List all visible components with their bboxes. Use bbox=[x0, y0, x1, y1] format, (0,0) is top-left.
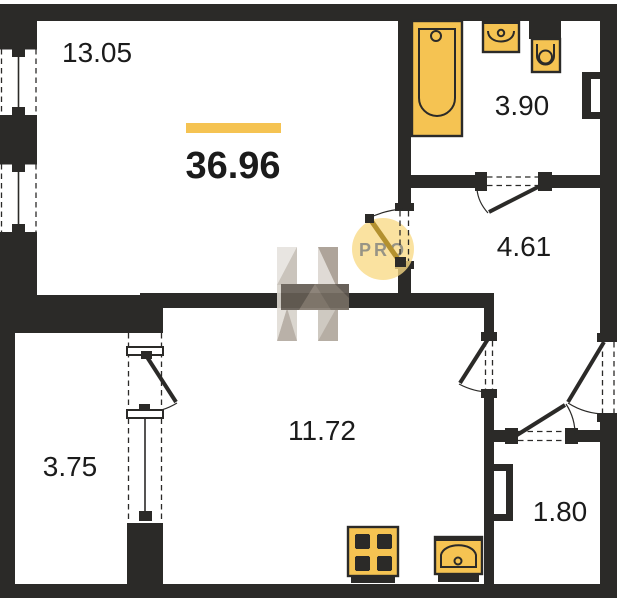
window-living-1 bbox=[0, 47, 37, 118]
stove-icon bbox=[348, 527, 398, 583]
total-area-label: 36.96 bbox=[185, 145, 280, 187]
total-area-accent-bar bbox=[186, 123, 281, 133]
h-faceted-logo-watermark bbox=[277, 247, 349, 341]
area-labels: 36.96 13.05 3.90 4.61 11.72 3.75 1.80 bbox=[43, 37, 588, 527]
toilet-icon bbox=[529, 20, 561, 72]
door-entrance bbox=[568, 342, 614, 414]
door-kitchen bbox=[459, 339, 493, 392]
bathroom-area-label: 3.90 bbox=[495, 90, 550, 121]
storage-area-label: 1.80 bbox=[533, 496, 588, 527]
kitchen-living-area-label: 11.72 bbox=[288, 415, 356, 446]
floor-plan-canvas: PRO bbox=[0, 0, 617, 600]
pro-badge-watermark: PRO bbox=[352, 218, 414, 280]
bathroom-duct-niche bbox=[582, 72, 600, 119]
window-living-2 bbox=[0, 162, 37, 235]
balcony-area-label: 3.75 bbox=[43, 451, 98, 482]
floor-plan-drawing: PRO bbox=[0, 0, 617, 600]
hallway-area-label: 4.61 bbox=[497, 231, 552, 262]
bathtub-icon bbox=[412, 21, 462, 136]
storage-duct-niche bbox=[493, 464, 513, 521]
living-room-area-label: 13.05 bbox=[62, 37, 132, 68]
kitchen-sink-icon bbox=[435, 537, 482, 582]
wash-basin-icon bbox=[483, 19, 519, 52]
balcony-door-window bbox=[127, 333, 177, 523]
